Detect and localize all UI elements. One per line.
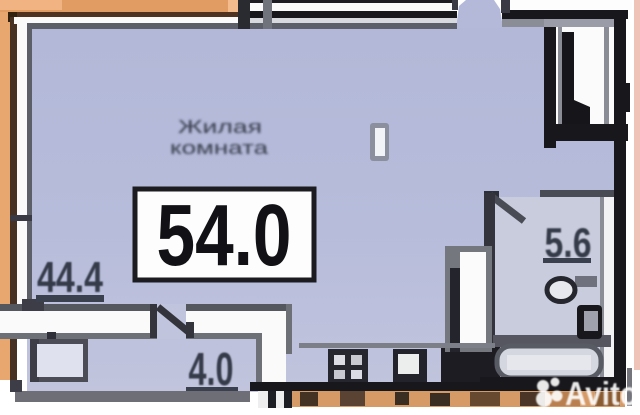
- svg-text:комната: комната: [170, 138, 269, 158]
- svg-text:Avito: Avito: [565, 375, 638, 412]
- svg-text:Жилая: Жилая: [178, 117, 262, 137]
- svg-text:44.4: 44.4: [37, 253, 103, 302]
- svg-text:54.0: 54.0: [157, 187, 292, 284]
